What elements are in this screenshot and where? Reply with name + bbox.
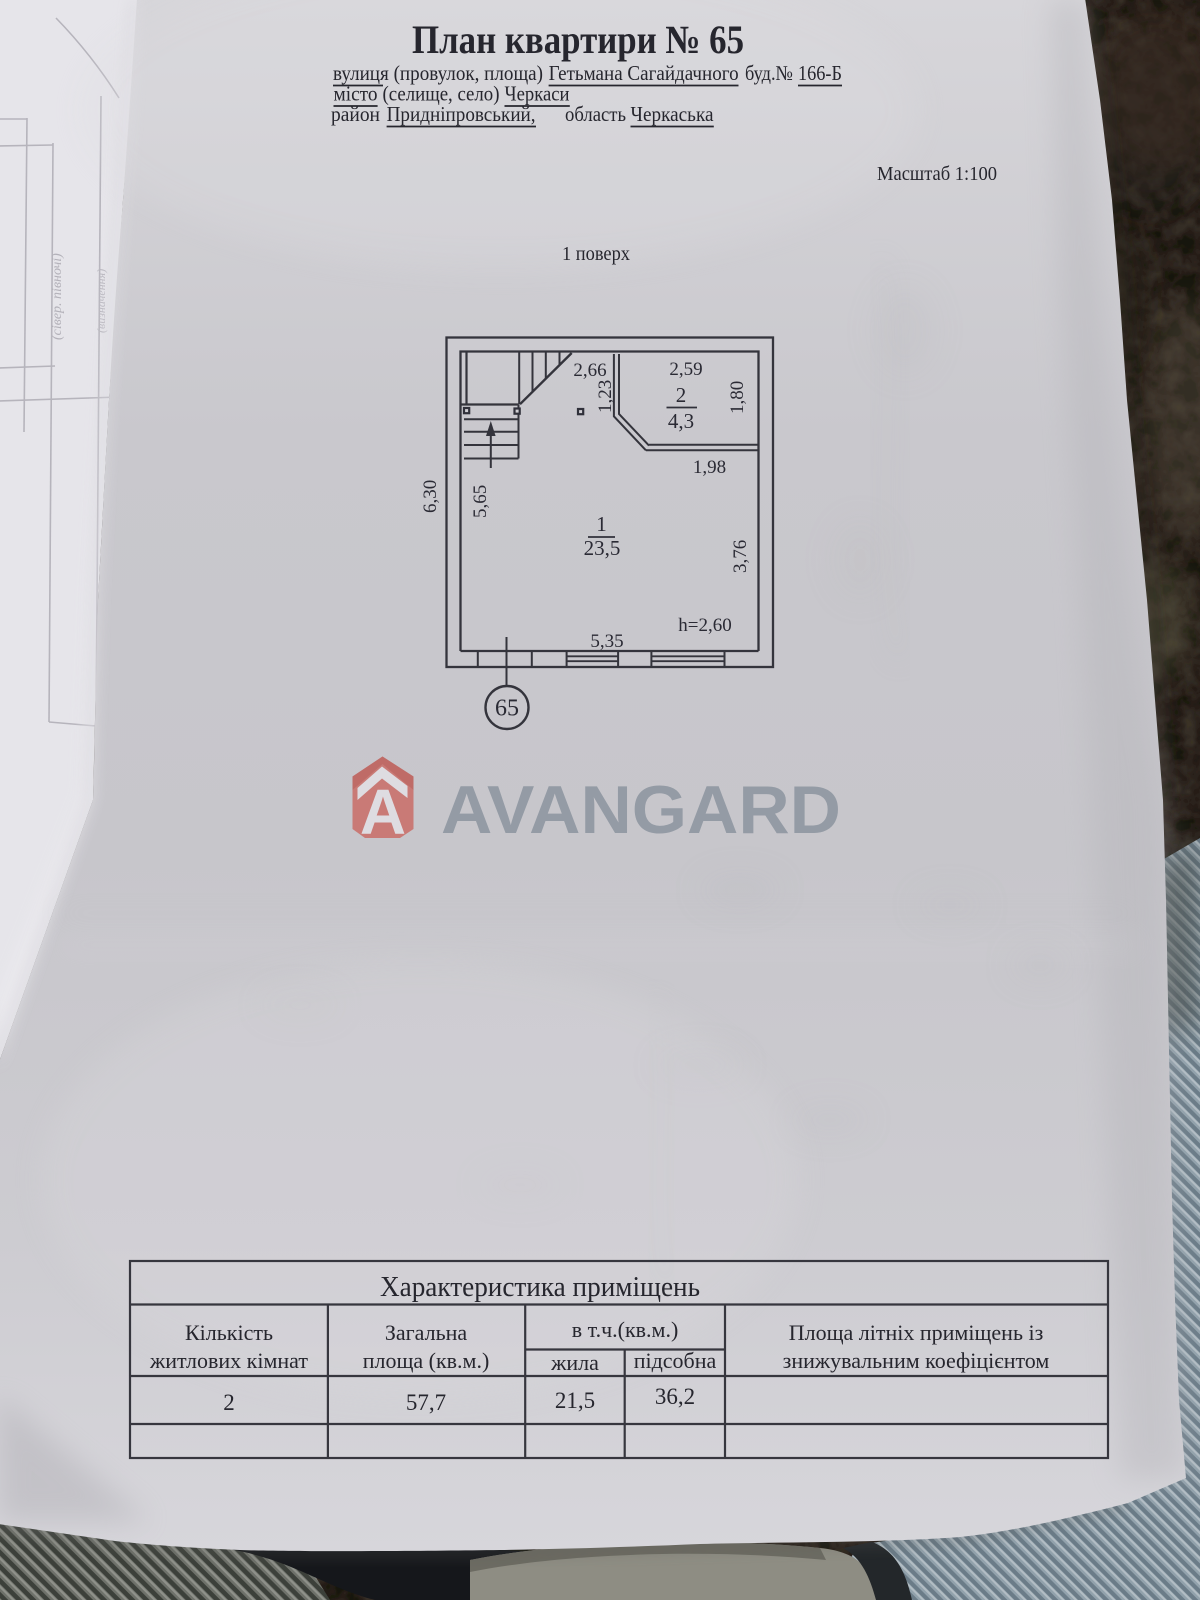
svg-text:План квартири № 65: План квартири № 65: [412, 17, 744, 62]
svg-text:A: A: [360, 776, 406, 848]
svg-text:Загальна: Загальна: [385, 1320, 468, 1345]
svg-text:3,76: 3,76: [730, 540, 751, 573]
svg-text:Кількість: Кількість: [185, 1320, 273, 1345]
svg-text:житлових кімнат: житлових кімнат: [149, 1348, 308, 1373]
svg-text:h=2,60: h=2,60: [678, 615, 731, 636]
svg-text:36,2: 36,2: [655, 1384, 695, 1409]
svg-text:Масштаб 1:100: Масштаб 1:100: [877, 163, 997, 185]
svg-text:4,3: 4,3: [668, 409, 694, 433]
svg-text:область: область: [565, 102, 626, 126]
svg-text:23,5: 23,5: [584, 536, 621, 560]
svg-text:район: район: [331, 102, 380, 126]
svg-text:57,7: 57,7: [406, 1390, 446, 1415]
svg-text:1,98: 1,98: [693, 457, 726, 478]
svg-text:1 поверх: 1 поверх: [562, 243, 630, 265]
svg-text:2: 2: [676, 383, 687, 407]
svg-text:(сівер. півночі): (сівер. півночі): [50, 253, 65, 340]
svg-text:Гетьмана Сагайдачного: Гетьмана Сагайдачного: [549, 61, 739, 85]
svg-text:1,80: 1,80: [727, 381, 748, 414]
svg-text:5,35: 5,35: [590, 631, 623, 652]
svg-text:6,30: 6,30: [420, 480, 441, 513]
svg-text:5,65: 5,65: [470, 485, 491, 518]
svg-text:21,5: 21,5: [555, 1388, 595, 1413]
svg-text:знижувальним коефіцієнтом: знижувальним коефіцієнтом: [783, 1348, 1050, 1373]
svg-text:1,23: 1,23: [595, 380, 616, 413]
svg-text:2,66: 2,66: [573, 360, 606, 381]
svg-text:жила: жила: [550, 1350, 599, 1375]
svg-text:буд.№: буд.№: [745, 61, 793, 85]
svg-text:65: 65: [495, 696, 519, 722]
svg-text:Придніпровський,: Придніпровський,: [387, 102, 536, 126]
svg-text:підсобна: підсобна: [634, 1348, 717, 1373]
svg-text:1: 1: [596, 512, 607, 536]
svg-text:2: 2: [223, 1390, 235, 1415]
svg-text:Площа літніх приміщень із: Площа літніх приміщень із: [789, 1320, 1044, 1345]
svg-text:AVANGARD: AVANGARD: [441, 772, 841, 848]
svg-text:в т.ч.(кв.м.): в т.ч.(кв.м.): [572, 1317, 679, 1342]
svg-text:166-Б: 166-Б: [798, 61, 842, 85]
svg-text:Характеристика приміщень: Характеристика приміщень: [380, 1271, 700, 1303]
svg-text:Черкаська: Черкаська: [631, 102, 715, 126]
svg-text:2,59: 2,59: [669, 359, 702, 380]
svg-text:(визначення): (визначення): [94, 269, 108, 333]
svg-text:площа (кв.м.): площа (кв.м.): [363, 1348, 490, 1373]
